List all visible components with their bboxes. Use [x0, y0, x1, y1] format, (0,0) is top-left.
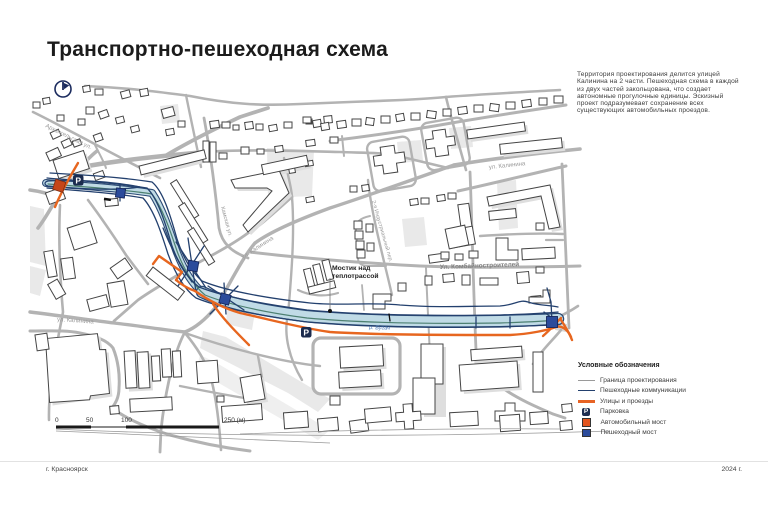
svg-text:Ул. Комбайностроителей: Ул. Комбайностроителей: [440, 260, 520, 271]
svg-text:теплотрассой: теплотрассой: [332, 272, 379, 280]
svg-text:р. Бугач: р. Бугач: [368, 325, 390, 332]
svg-text:0: 0: [55, 417, 59, 424]
svg-text:P: P: [75, 175, 81, 185]
svg-text:Мостик над: Мостик над: [332, 265, 371, 272]
svg-text:250 (м): 250 (м): [224, 417, 245, 424]
svg-text:ул. Калинина: ул. Калинина: [489, 161, 527, 171]
svg-text:50: 50: [86, 417, 94, 424]
svg-text:Архангельская ул.: Архангельская ул.: [44, 123, 93, 151]
svg-text:100: 100: [121, 417, 132, 424]
svg-text:ул. Калинина: ул. Калинина: [57, 317, 95, 326]
svg-text:P: P: [303, 327, 309, 337]
